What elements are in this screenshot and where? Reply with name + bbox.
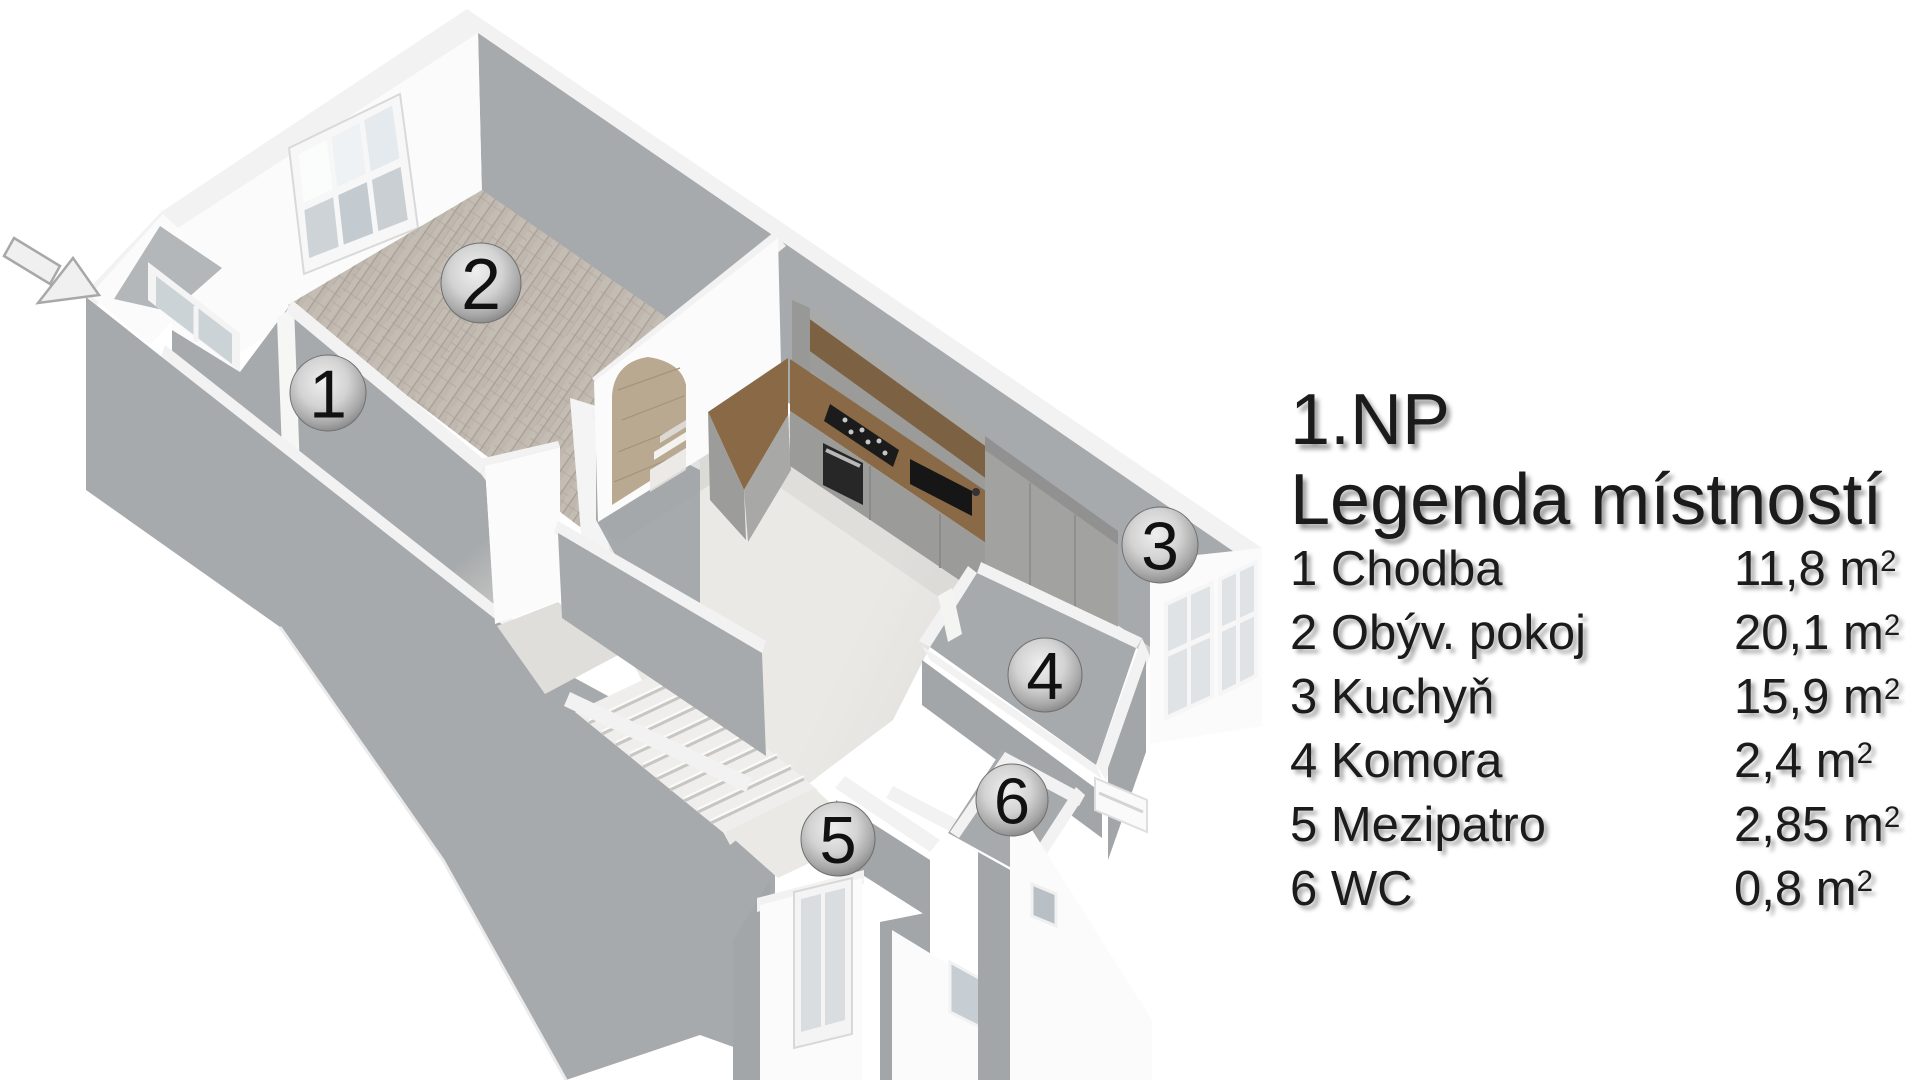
- svg-text:2: 2: [461, 245, 501, 325]
- svg-text:1: 1: [309, 357, 347, 433]
- svg-text:5: 5: [819, 803, 856, 878]
- svg-text:3: 3: [1141, 509, 1179, 585]
- svg-text:6: 6: [994, 764, 1030, 837]
- svg-text:4: 4: [1026, 639, 1063, 714]
